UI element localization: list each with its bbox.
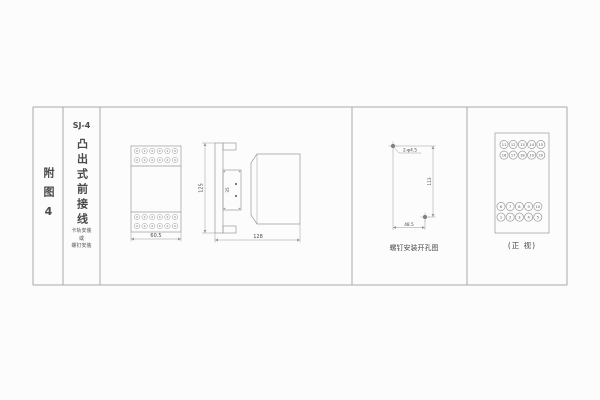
svg-text:19: 19 xyxy=(529,153,534,157)
svg-text:3: 3 xyxy=(518,215,520,219)
mount-note-line1: 卡轨安装 xyxy=(63,228,100,236)
page: { "colors": { "bg": "#fcfcfc", "line": "… xyxy=(0,0,600,400)
svg-text:1: 1 xyxy=(500,215,502,219)
side-depth-dim: 128 xyxy=(253,234,263,240)
svg-text:8: 8 xyxy=(518,205,521,209)
drill-width-dim: 48.5 xyxy=(404,222,414,228)
svg-text:9: 9 xyxy=(527,205,530,209)
front-view-drawing: 60.5 xyxy=(131,146,181,242)
front-strip-bottom xyxy=(134,214,177,228)
front-width-dim: 60.5 xyxy=(150,233,161,239)
terminal-grid-bottom: 67891012345 xyxy=(497,202,542,221)
terminal-view-caption: (正 视) xyxy=(490,240,554,251)
front-strip-top xyxy=(134,148,177,162)
svg-text:2: 2 xyxy=(509,215,511,219)
mount-note-line2: 或 xyxy=(63,236,100,244)
svg-text:16: 16 xyxy=(502,153,507,157)
mount-note-line3: 螺钉安装 xyxy=(63,243,100,251)
svg-text:4: 4 xyxy=(527,215,530,219)
svg-text:11: 11 xyxy=(502,143,507,147)
drill-height-dim: 113 xyxy=(427,177,433,185)
side-clip-dim: 35 xyxy=(225,187,231,193)
svg-text:20: 20 xyxy=(539,153,544,157)
drill-template-drawing: 113 48.5 2-φ4.5 xyxy=(389,142,436,231)
terminal-grid-top: 11121314151617181920 xyxy=(500,140,545,159)
svg-text:14: 14 xyxy=(529,143,534,147)
svg-text:10: 10 xyxy=(536,205,541,209)
figure-label: 附图4 xyxy=(33,107,63,285)
side-view-drawing: 125 35 128 xyxy=(199,143,301,243)
svg-text:17: 17 xyxy=(511,153,516,157)
svg-text:7: 7 xyxy=(509,205,511,209)
mount-note: 卡轨安装 或 螺钉安装 xyxy=(63,228,100,251)
side-height-dim: 125 xyxy=(199,183,205,193)
svg-text:18: 18 xyxy=(520,153,525,157)
type-label: 凸出式前接线 xyxy=(74,138,90,228)
svg-text:13: 13 xyxy=(520,143,525,147)
svg-text:12: 12 xyxy=(511,143,516,147)
svg-text:6: 6 xyxy=(500,205,503,209)
drill-hole-label: 2-φ4.5 xyxy=(403,148,417,154)
model-label: SJ-4 xyxy=(63,121,100,130)
drill-template-caption: 螺钉安装开孔图 xyxy=(368,243,460,253)
type-label-wrap: 凸出式前接线 xyxy=(63,138,100,230)
svg-text:5: 5 xyxy=(537,215,539,219)
svg-text:15: 15 xyxy=(539,143,544,147)
terminal-front-drawing: 11121314151617181920 67891012345 xyxy=(495,133,549,233)
